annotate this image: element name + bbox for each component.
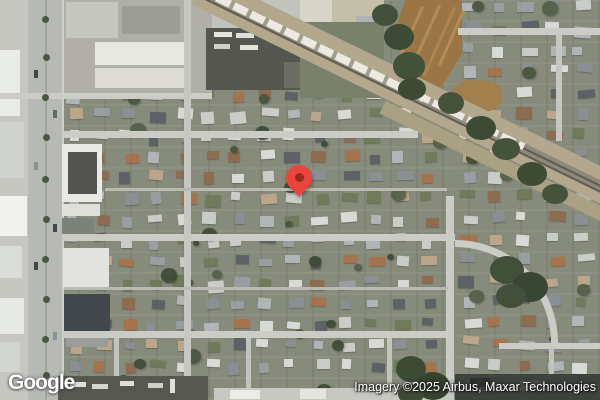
map-feature [0,342,20,372]
map-feature [0,50,20,116]
map-feature [53,110,57,118]
house-roof [94,108,110,117]
map-feature [62,234,455,241]
tree [161,268,177,283]
house-roof [229,111,246,124]
house-roof [235,255,248,265]
house-roof [125,342,136,350]
map-feature [34,70,38,78]
map-feature [120,381,134,386]
house-roof [146,339,157,348]
house-roof [371,214,381,223]
house-roof [289,297,304,308]
house-roof [148,151,160,162]
house-roof [338,110,352,120]
house-roof [70,108,83,119]
house-roof [311,170,326,180]
house-roof [287,110,300,119]
map-feature [0,298,24,334]
house-roof [341,212,358,223]
house-roof [488,68,502,76]
tree [259,94,269,103]
map-feature [0,122,24,178]
map-feature [63,248,109,288]
map-feature [66,338,108,347]
house-roof [232,91,243,101]
map-pin[interactable] [286,163,312,200]
map-feature [43,296,50,303]
map-feature [372,4,398,26]
house-roof [259,259,272,266]
house-roof [258,362,268,373]
house-roof [369,173,383,181]
house-roof [311,150,326,162]
house-roof [148,215,162,224]
house-roof [310,111,321,121]
tree [542,1,558,16]
map-feature [148,383,163,388]
map-feature [42,256,49,263]
house-roof [420,192,432,201]
house-roof [370,154,381,164]
map-feature [230,390,260,399]
house-roof [392,151,404,163]
map-feature [43,54,50,61]
house-roof [344,255,357,264]
house-roof [124,318,138,330]
map-feature [95,42,191,65]
map-feature [105,188,447,191]
house-roof [230,300,244,308]
house-roof [122,108,135,117]
map-feature [466,116,496,140]
house-roof [149,111,165,122]
map-feature [43,216,50,223]
map-feature [95,68,188,88]
house-roof [118,171,130,183]
house-roof [551,256,566,266]
map-feature [62,131,418,138]
map-feature [240,45,258,50]
tree [309,256,321,267]
house-roof [285,339,296,347]
tree [326,320,336,329]
map-feature [300,0,334,22]
map-feature [0,93,212,99]
house-roof [422,174,433,184]
house-roof [369,256,386,265]
map-feature [214,44,230,49]
house-roof [576,0,592,11]
map-feature [496,284,526,308]
house-roof [464,66,476,78]
house-roof [235,213,245,224]
house-roof [151,300,165,310]
house-roof [494,3,504,12]
imagery-attribution: Imagery ©2025 Airbus, Maxar Technologies [354,380,596,394]
house-roof [516,106,532,118]
house-roof [257,298,271,310]
house-roof [125,153,138,163]
map-feature [170,379,175,393]
house-roof [517,2,534,12]
house-roof [397,171,414,180]
house-roof [228,362,240,375]
house-roof [284,359,293,367]
map-feature [184,0,191,400]
house-roof [487,191,500,203]
house-roof [150,359,167,368]
map-feature [34,162,38,170]
map-feature [58,376,208,400]
house-roof [578,109,589,121]
house-roof [463,171,476,183]
house-roof [342,359,352,369]
house-roof [70,362,81,371]
house-roof [284,151,300,163]
house-roof [464,216,478,225]
house-roof [150,191,161,204]
map-feature [556,33,562,141]
house-roof [150,257,165,265]
house-roof [314,341,324,350]
house-roof [263,171,274,182]
house-roof [366,191,381,204]
house-roof [462,42,473,52]
map-feature [517,162,547,186]
satellite-map[interactable]: Google Imagery ©2025 Airbus, Maxar Techn… [0,0,600,400]
house-roof [122,298,135,309]
house-roof [317,359,330,369]
house-roof [572,47,582,55]
map-feature [214,32,232,37]
map-feature [393,52,425,80]
house-roof [201,111,214,124]
house-roof [344,171,360,180]
map-feature [438,92,464,114]
house-roof [262,108,279,117]
house-roof [573,215,588,225]
house-roof [549,210,566,220]
map-feature [542,184,568,204]
house-roof [310,297,325,307]
house-roof [203,258,218,267]
house-roof [124,192,138,205]
house-roof [576,63,593,73]
house-roof [344,149,359,160]
tree [321,141,328,147]
house-roof [204,172,215,184]
map-feature [66,2,118,38]
map-feature [42,94,49,101]
tree [332,340,345,351]
map-feature [0,196,27,236]
house-roof [231,191,241,199]
map-feature [122,6,180,34]
house-roof [289,280,303,287]
house-roof [203,322,218,330]
house-roof [205,195,221,208]
house-roof [426,217,439,226]
house-roof [522,48,538,57]
house-roof [260,149,274,159]
map-feature [42,176,49,183]
house-roof [206,359,220,368]
house-roof [573,128,585,139]
map-feature [398,78,426,100]
tree [577,284,590,296]
house-roof [516,189,531,200]
house-roof [516,234,530,246]
house-roof [148,170,163,182]
map-feature [43,134,50,141]
house-roof [490,235,503,245]
house-roof [317,194,330,204]
house-roof [547,233,558,241]
house-roof [393,217,403,227]
house-roof [208,341,221,352]
map-feature [492,138,520,160]
tree [212,270,222,279]
house-roof [93,361,103,372]
house-roof [119,258,135,267]
house-roof [202,212,216,224]
house-roof [285,91,299,100]
house-roof [339,317,351,329]
tree [134,359,146,369]
house-roof [255,339,268,348]
house-roof [572,362,587,373]
house-roof [517,86,533,97]
map-feature [384,24,414,50]
map-feature [300,389,326,399]
house-roof [492,47,503,58]
house-roof [516,212,526,221]
tree [193,240,199,246]
map-feature [64,294,110,334]
google-logo[interactable]: Google [8,371,74,395]
map-feature [42,336,49,343]
house-roof [574,233,588,242]
map-feature [92,384,108,389]
house-roof [341,192,357,201]
map-feature [34,262,38,270]
map-feature [53,224,57,232]
house-roof [234,319,250,329]
house-roof [206,298,221,309]
house-roof [491,211,505,223]
house-roof [121,217,131,228]
house-roof [261,193,278,204]
house-roof [572,316,584,327]
map-pin-dot [295,173,304,182]
house-roof [576,298,586,307]
house-roof [232,174,244,183]
house-roof [341,301,352,309]
tree [285,221,292,227]
house-roof [260,216,274,227]
house-roof [310,217,327,226]
house-roof [285,255,300,263]
tree [522,67,535,79]
map-feature [458,28,600,35]
house-roof [460,189,476,197]
map-feature [53,332,57,340]
house-roof [207,151,219,159]
map-feature [62,204,100,216]
tree [472,1,484,12]
map-feature [68,152,97,194]
tree [354,264,362,271]
house-roof [425,152,438,163]
house-roof [578,89,596,99]
house-roof [578,253,595,262]
map-feature [0,246,22,278]
map-feature [42,16,49,23]
